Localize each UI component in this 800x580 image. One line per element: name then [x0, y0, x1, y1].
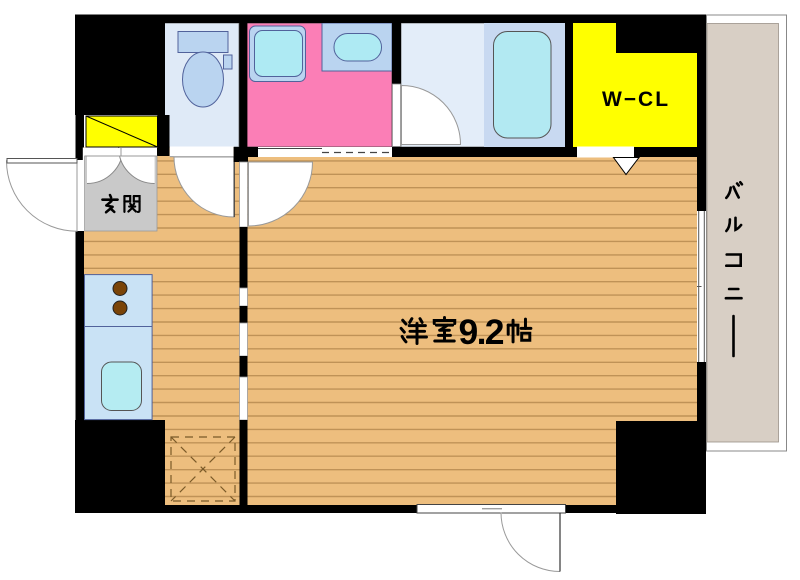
svg-text:W−CL: W−CL [602, 88, 670, 111]
svg-text:9.2: 9.2 [459, 312, 505, 352]
